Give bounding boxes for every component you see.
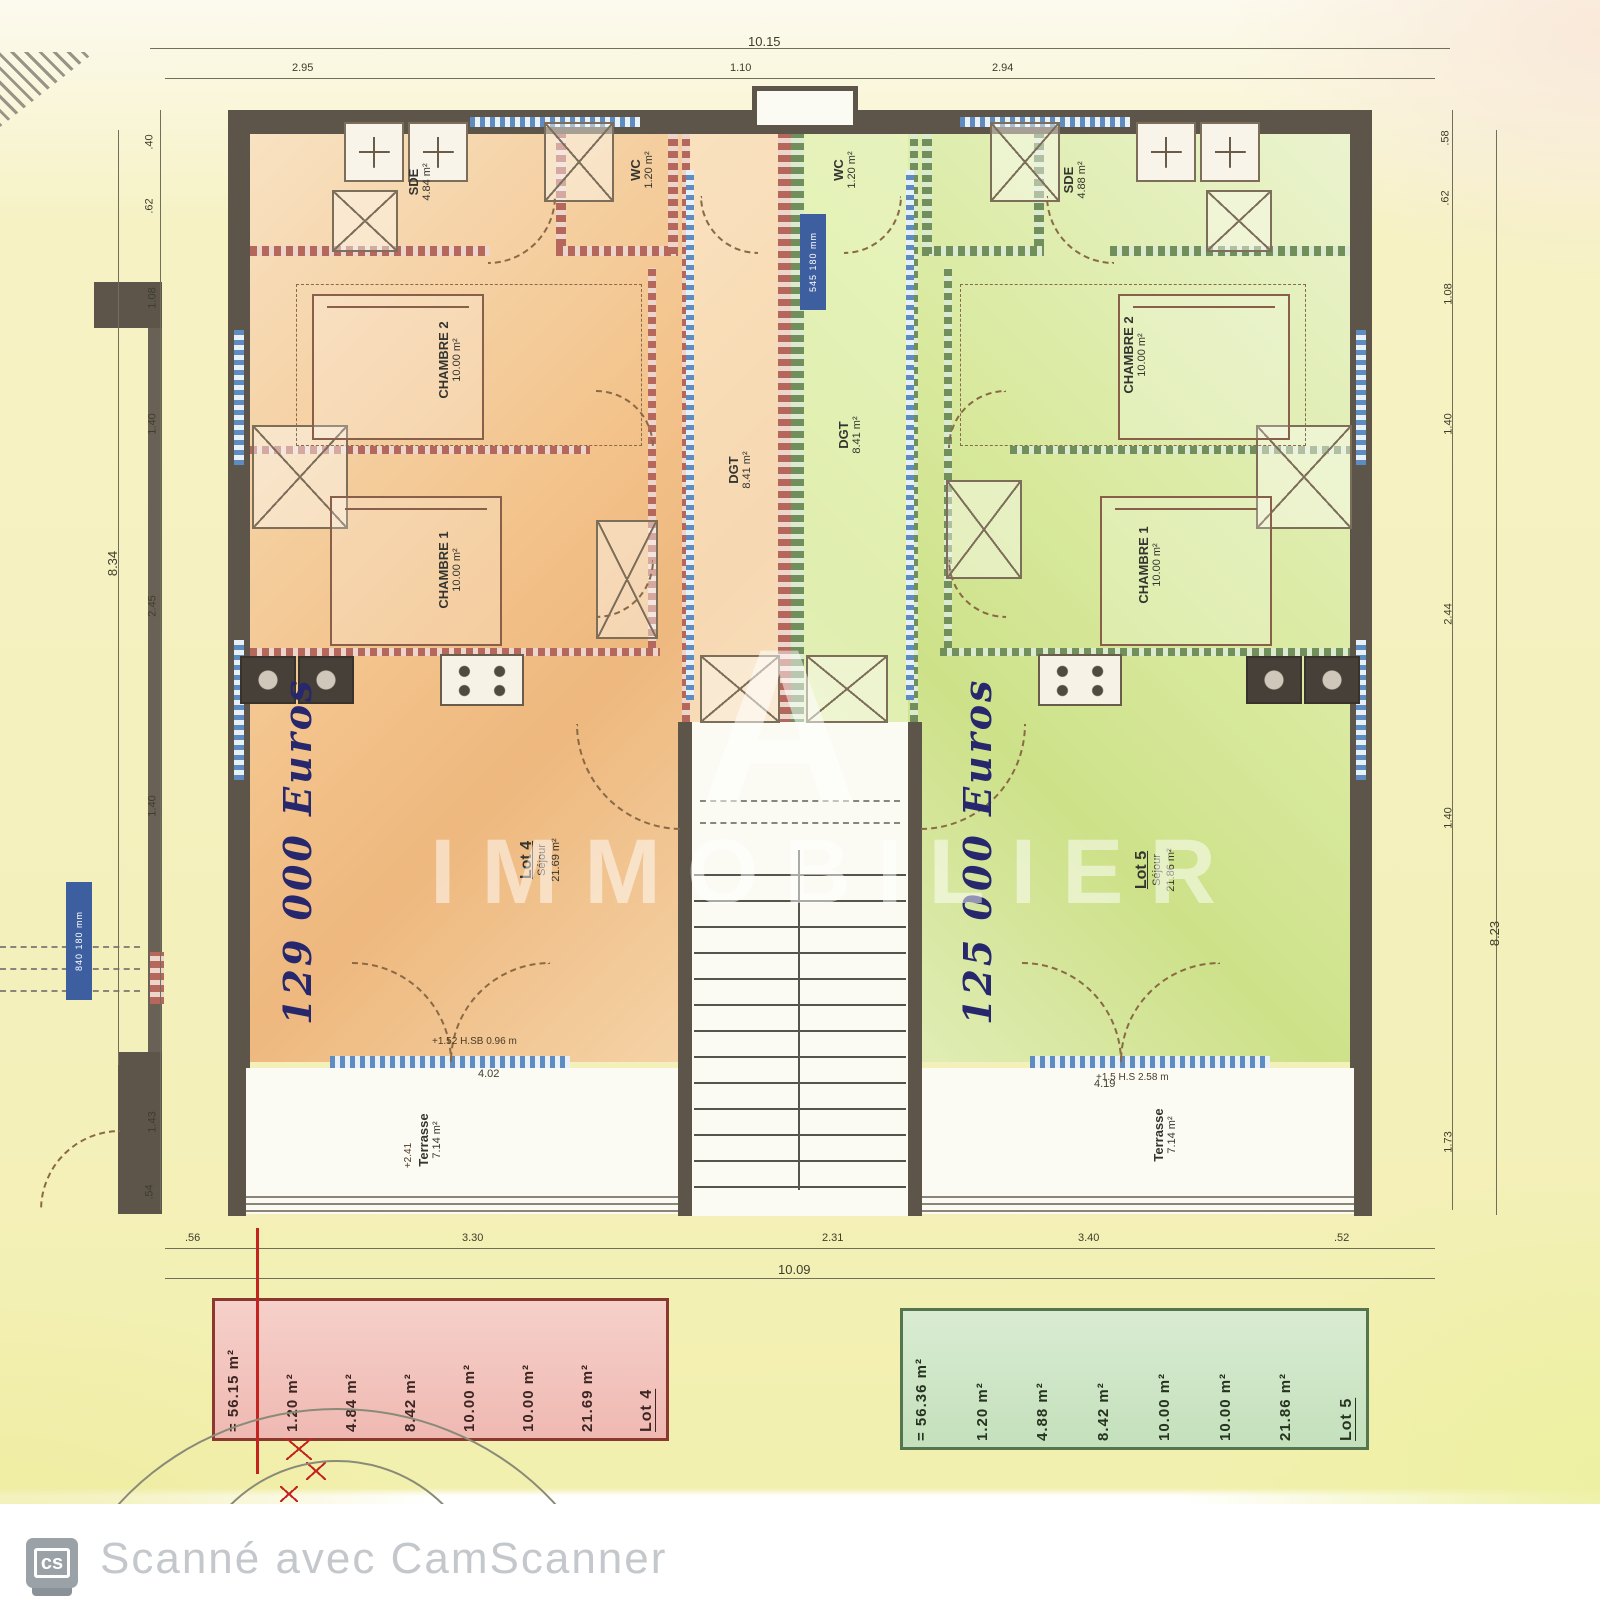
price-lot4: 129 000 Euros [275,695,325,1025]
partition [922,134,932,254]
dim-left-lower: 1.43 [147,1111,159,1132]
dim-top-seg: 1.10 [730,62,751,74]
dim-line [1496,130,1497,1215]
room-label-sde-lot5: SDE 4.88 m² [1055,110,1095,250]
exterior-wall-left [228,110,250,1068]
camscanner-footer: cs Scanné avec CamScanner [0,1504,1600,1600]
red-wall-stub [150,952,164,1004]
partition [922,246,1044,256]
table-row: 10.00 m² [520,1307,537,1432]
terrasse-lot5 [922,1068,1354,1214]
dim-right: 2.44 [1443,603,1455,624]
partition [944,268,952,648]
terrace-wall-right [1354,1068,1372,1216]
dim-left: .62 [144,198,156,213]
room-label-terrasse-lot4: Terrasse 7.14 m² [410,1070,450,1210]
dim-right: 1.40 [1443,413,1455,434]
room-label-dgt-lot4: DGT 8.41 m² [720,400,760,540]
room-label-chambre1-lot5: CHAMBRE 1 10.00 m² [1130,495,1170,635]
dim-top-seg: 2.94 [992,62,1013,74]
door-size-label: 545 180 mm [808,232,818,292]
washbasin [1200,122,1260,182]
dim-left: 1.40 [147,795,159,816]
dim-top-total: 10.15 [748,34,781,49]
room-label-chambre2-lot4: CHAMBRE 2 10.00 m² [430,290,470,430]
table-row: 21.86 m² [1277,1317,1294,1441]
exterior-wall-right [1350,110,1372,1068]
terrace-railing [922,1196,1354,1214]
kitchen-sink [1246,656,1302,704]
stair-landing-line [700,800,900,802]
corner-hatch [0,52,95,127]
dim-line [160,110,161,1210]
camscanner-badge-label: cs [34,1548,70,1578]
camscanner-logo-icon: cs [26,1538,78,1588]
dim-sejour-lot5: 4.19 [1094,1078,1115,1090]
room-label-sde-lot4: SDE 4.84 m² [400,112,440,252]
stair-landing-line [700,822,900,824]
window-strip [686,170,694,700]
dim-left: 1.40 [147,413,159,434]
bed [1100,496,1272,646]
window-strip [1356,330,1366,465]
kitchen-sink [1304,656,1360,704]
dim-bottom-seg: 3.40 [1078,1232,1099,1244]
dim-bottom-seg: 3.30 [462,1232,483,1244]
stair-treads [694,850,906,1190]
dim-bottom-seg: .52 [1334,1232,1349,1244]
room-label-chambre1-lot4: CHAMBRE 1 10.00 m² [430,500,470,640]
dim-top-seg: 2.95 [292,62,313,74]
terrace-wall-left [228,1068,246,1216]
duct-shaft [544,122,614,202]
window-note-lot4: +1.52 H.SB 0.96 m [432,1036,517,1047]
dim-line [165,1248,1435,1249]
terrasse-lot4 [246,1068,678,1214]
room-label-chambre2-lot5: CHAMBRE 2 10.00 m² [1115,285,1155,425]
area-table-lot5: Lot 5 21.86 m² 10.00 m² 10.00 m² 8.42 m²… [900,1308,1369,1450]
price-lot5: 125 000 Euros [955,695,1005,1025]
dim-right-lower: 1.73 [1443,1131,1455,1152]
table-row: 1.20 m² [974,1317,991,1441]
duct-shaft [700,655,780,723]
shower-box [1206,190,1272,252]
duct-shaft [990,122,1060,202]
dim-right: 1.08 [1443,283,1455,304]
table-row: 10.00 m² [461,1307,478,1432]
dim-left: .40 [144,134,156,149]
dim-line [165,78,1435,79]
washbasin [344,122,404,182]
dim-bottom-total: 10.09 [778,1262,811,1277]
table-total: = 56.15 m² [225,1307,242,1432]
table-row: 10.00 m² [1217,1317,1234,1441]
room-label-sejour-lot5: Lot 5 Séjour 21.86 m² [1120,800,1190,940]
partition [940,648,1350,656]
dim-left: 1.08 [147,287,159,308]
room-label-dgt-lot5: DGT 8.41 m² [830,365,870,505]
table-title: Lot 4 [638,1307,656,1432]
dim-left-total: 8.34 [105,551,120,576]
door-size-tag: 545 180 mm [800,214,826,310]
partition [556,246,678,256]
shower-box [332,190,398,252]
table-row: 21.69 m² [579,1307,596,1432]
room-label-sejour-lot4: Lot 4 Séjour 21.69 m² [505,790,575,930]
level-note-lot4: +2.41 [403,1143,414,1168]
partition [668,134,678,254]
duct-shaft [806,655,888,723]
table-row: 8.42 m² [402,1307,419,1432]
table-row: 8.42 m² [1095,1317,1112,1441]
camscanner-caption: Scanné avec CamScanner [100,1534,667,1584]
window-strip [906,170,914,700]
room-label-wc-lot4: WC 1.20 m² [622,100,662,240]
room-label-terrasse-lot5: Terrasse 7.14 m² [1145,1065,1185,1205]
bed [330,496,502,646]
room-label-wc-lot5: WC 1.20 m² [825,100,865,240]
door-swing [40,1130,120,1210]
stove [440,654,524,706]
dim-bottom-seg: .56 [185,1232,200,1244]
door-size-label: 840 180 mm [74,911,84,971]
dim-right-total: 8.23 [1487,921,1502,946]
dim-sejour-lot4: 4.02 [478,1068,499,1080]
dim-bottom-seg: 2.31 [822,1232,843,1244]
dim-right: .62 [1440,190,1452,205]
terrace-railing [246,1196,678,1214]
washbasin [1136,122,1196,182]
window-strip [234,330,244,465]
dim-left-lower: .54 [144,1184,156,1199]
table-title: Lot 5 [1338,1317,1356,1441]
dim-line [118,130,119,1065]
table-total: = 56.36 m² [913,1317,930,1441]
dim-line [165,1278,1435,1279]
dim-left: 2.45 [147,595,159,616]
table-row: 10.00 m² [1156,1317,1173,1441]
stove [1038,654,1122,706]
table-row: 4.88 m² [1034,1317,1051,1441]
dim-right: 1.40 [1443,807,1455,828]
dim-line [150,48,1450,49]
door-size-tag: 840 180 mm [66,882,92,1000]
stair-stringer [798,850,800,1190]
dim-right: .58 [1440,130,1452,145]
scanned-floor-plan: 840 180 mm [0,0,1600,1600]
dim-line [1452,110,1453,1210]
